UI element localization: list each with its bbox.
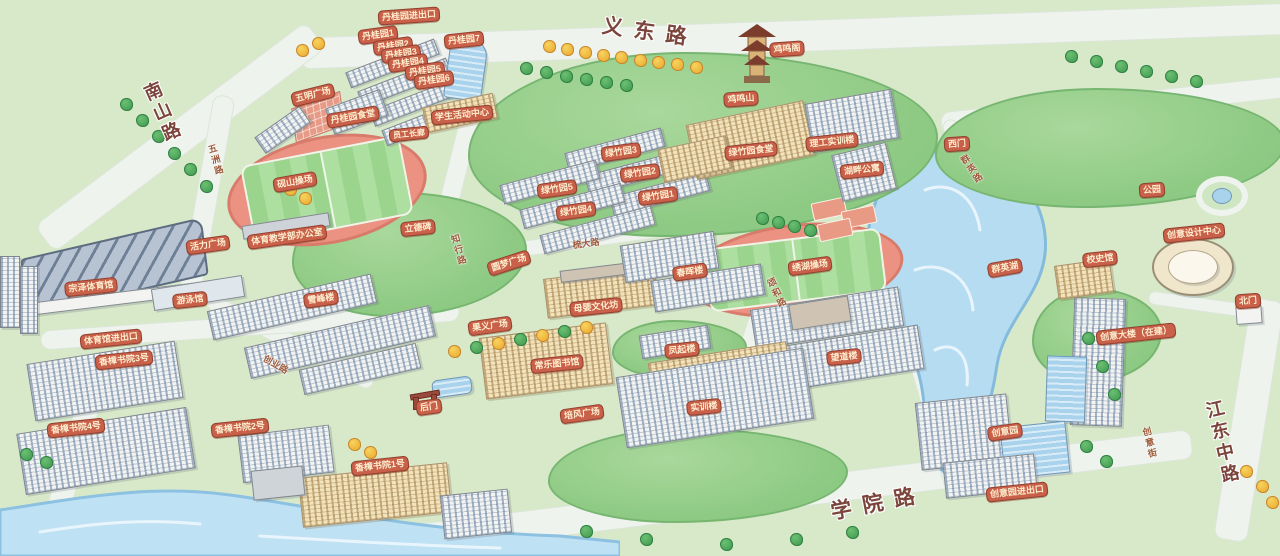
tree-icon <box>634 54 647 67</box>
tree-icon <box>846 526 859 539</box>
label-road-nanshan: 南山路 <box>137 78 188 149</box>
tree-icon <box>1140 65 1153 78</box>
tree-icon <box>520 62 533 75</box>
tree-icon <box>690 61 703 74</box>
tree-icon <box>492 337 505 350</box>
tree-icon <box>804 224 817 237</box>
label-park: 公园 <box>1139 182 1166 199</box>
campus-map: 丹桂园进出口丹桂园1丹桂园2丹桂园3丹桂园4丹桂园5丹桂园6丹桂园7五明广场丹桂… <box>0 0 1280 556</box>
tree-icon <box>543 40 556 53</box>
tree-icon <box>470 341 483 354</box>
tree-icon <box>597 49 610 62</box>
tree-icon <box>1266 496 1279 509</box>
tree-icon <box>788 220 801 233</box>
tree-icon <box>756 212 769 225</box>
tree-icon <box>1080 440 1093 453</box>
tree-icon <box>1100 455 1113 468</box>
tree-icon <box>1082 332 1095 345</box>
tree-icon <box>580 73 593 86</box>
tree-icon <box>620 79 633 92</box>
tree-icon <box>348 438 361 451</box>
label-plaza-peifeng: 培风广场 <box>559 404 605 425</box>
tree-icon <box>1108 388 1121 401</box>
decor <box>750 65 764 76</box>
tree-icon <box>312 37 325 50</box>
label-back-gate: 后门 <box>415 398 443 416</box>
tree-icon <box>600 76 613 89</box>
building-block <box>20 266 38 334</box>
building-block <box>251 465 306 500</box>
tree-icon <box>1190 75 1203 88</box>
label-mountain-jiming: 鸡鸣山 <box>723 90 759 107</box>
tree-icon <box>671 58 684 71</box>
tree-icon <box>1096 360 1109 373</box>
label-road-shuda: 梳大路 <box>572 235 601 252</box>
building-block <box>1045 355 1087 422</box>
tree-icon <box>168 147 181 160</box>
tree-icon <box>20 448 33 461</box>
tree-icon <box>640 533 653 546</box>
fountain-water <box>1212 188 1232 204</box>
tree-icon <box>296 44 309 57</box>
tree-icon <box>558 325 571 338</box>
tree-icon <box>200 180 213 193</box>
tree-icon <box>136 114 149 127</box>
label-plaza-guoyi: 果义广场 <box>467 316 513 337</box>
tree-icon <box>1090 55 1103 68</box>
tree-icon <box>448 345 461 358</box>
tree-icon <box>615 51 628 64</box>
decor <box>744 55 770 65</box>
tree-icon <box>536 329 549 342</box>
tree-icon <box>580 525 593 538</box>
decor <box>744 76 770 83</box>
tree-icon <box>1165 70 1178 83</box>
decor <box>741 40 773 51</box>
tree-icon <box>1256 480 1269 493</box>
tree-icon <box>720 538 733 551</box>
tree-icon <box>560 70 573 83</box>
label-pavilion-jiming: 鸡鸣阁 <box>769 40 805 57</box>
tree-icon <box>299 192 312 205</box>
tree-icon <box>579 46 592 59</box>
tree-icon <box>40 456 53 469</box>
tree-icon <box>184 163 197 176</box>
label-history-museum: 校史馆 <box>1082 250 1118 269</box>
tree-icon <box>540 66 553 79</box>
label-gate-dangui: 丹桂园进出口 <box>378 6 441 25</box>
label-north-gate: 北门 <box>1235 293 1262 310</box>
tree-icon <box>772 216 785 229</box>
tree-icon <box>1065 50 1078 63</box>
tree-icon <box>364 446 377 459</box>
tree-icon <box>580 321 593 334</box>
label-creative-design-center: 创意设计中心 <box>1162 222 1225 243</box>
tree-icon <box>514 333 527 346</box>
label-west-gate: 西门 <box>944 136 971 153</box>
label-staff-corridor: 员工长廊 <box>388 125 429 142</box>
tree-icon <box>561 43 574 56</box>
building-block <box>0 256 20 328</box>
tree-icon <box>652 56 665 69</box>
building-block <box>1168 250 1218 284</box>
tree-icon <box>120 98 133 111</box>
building-block <box>440 489 512 540</box>
tree-icon <box>790 533 803 546</box>
tree-icon <box>1115 60 1128 73</box>
decor <box>738 24 776 37</box>
label-natatorium: 游泳馆 <box>172 291 208 310</box>
